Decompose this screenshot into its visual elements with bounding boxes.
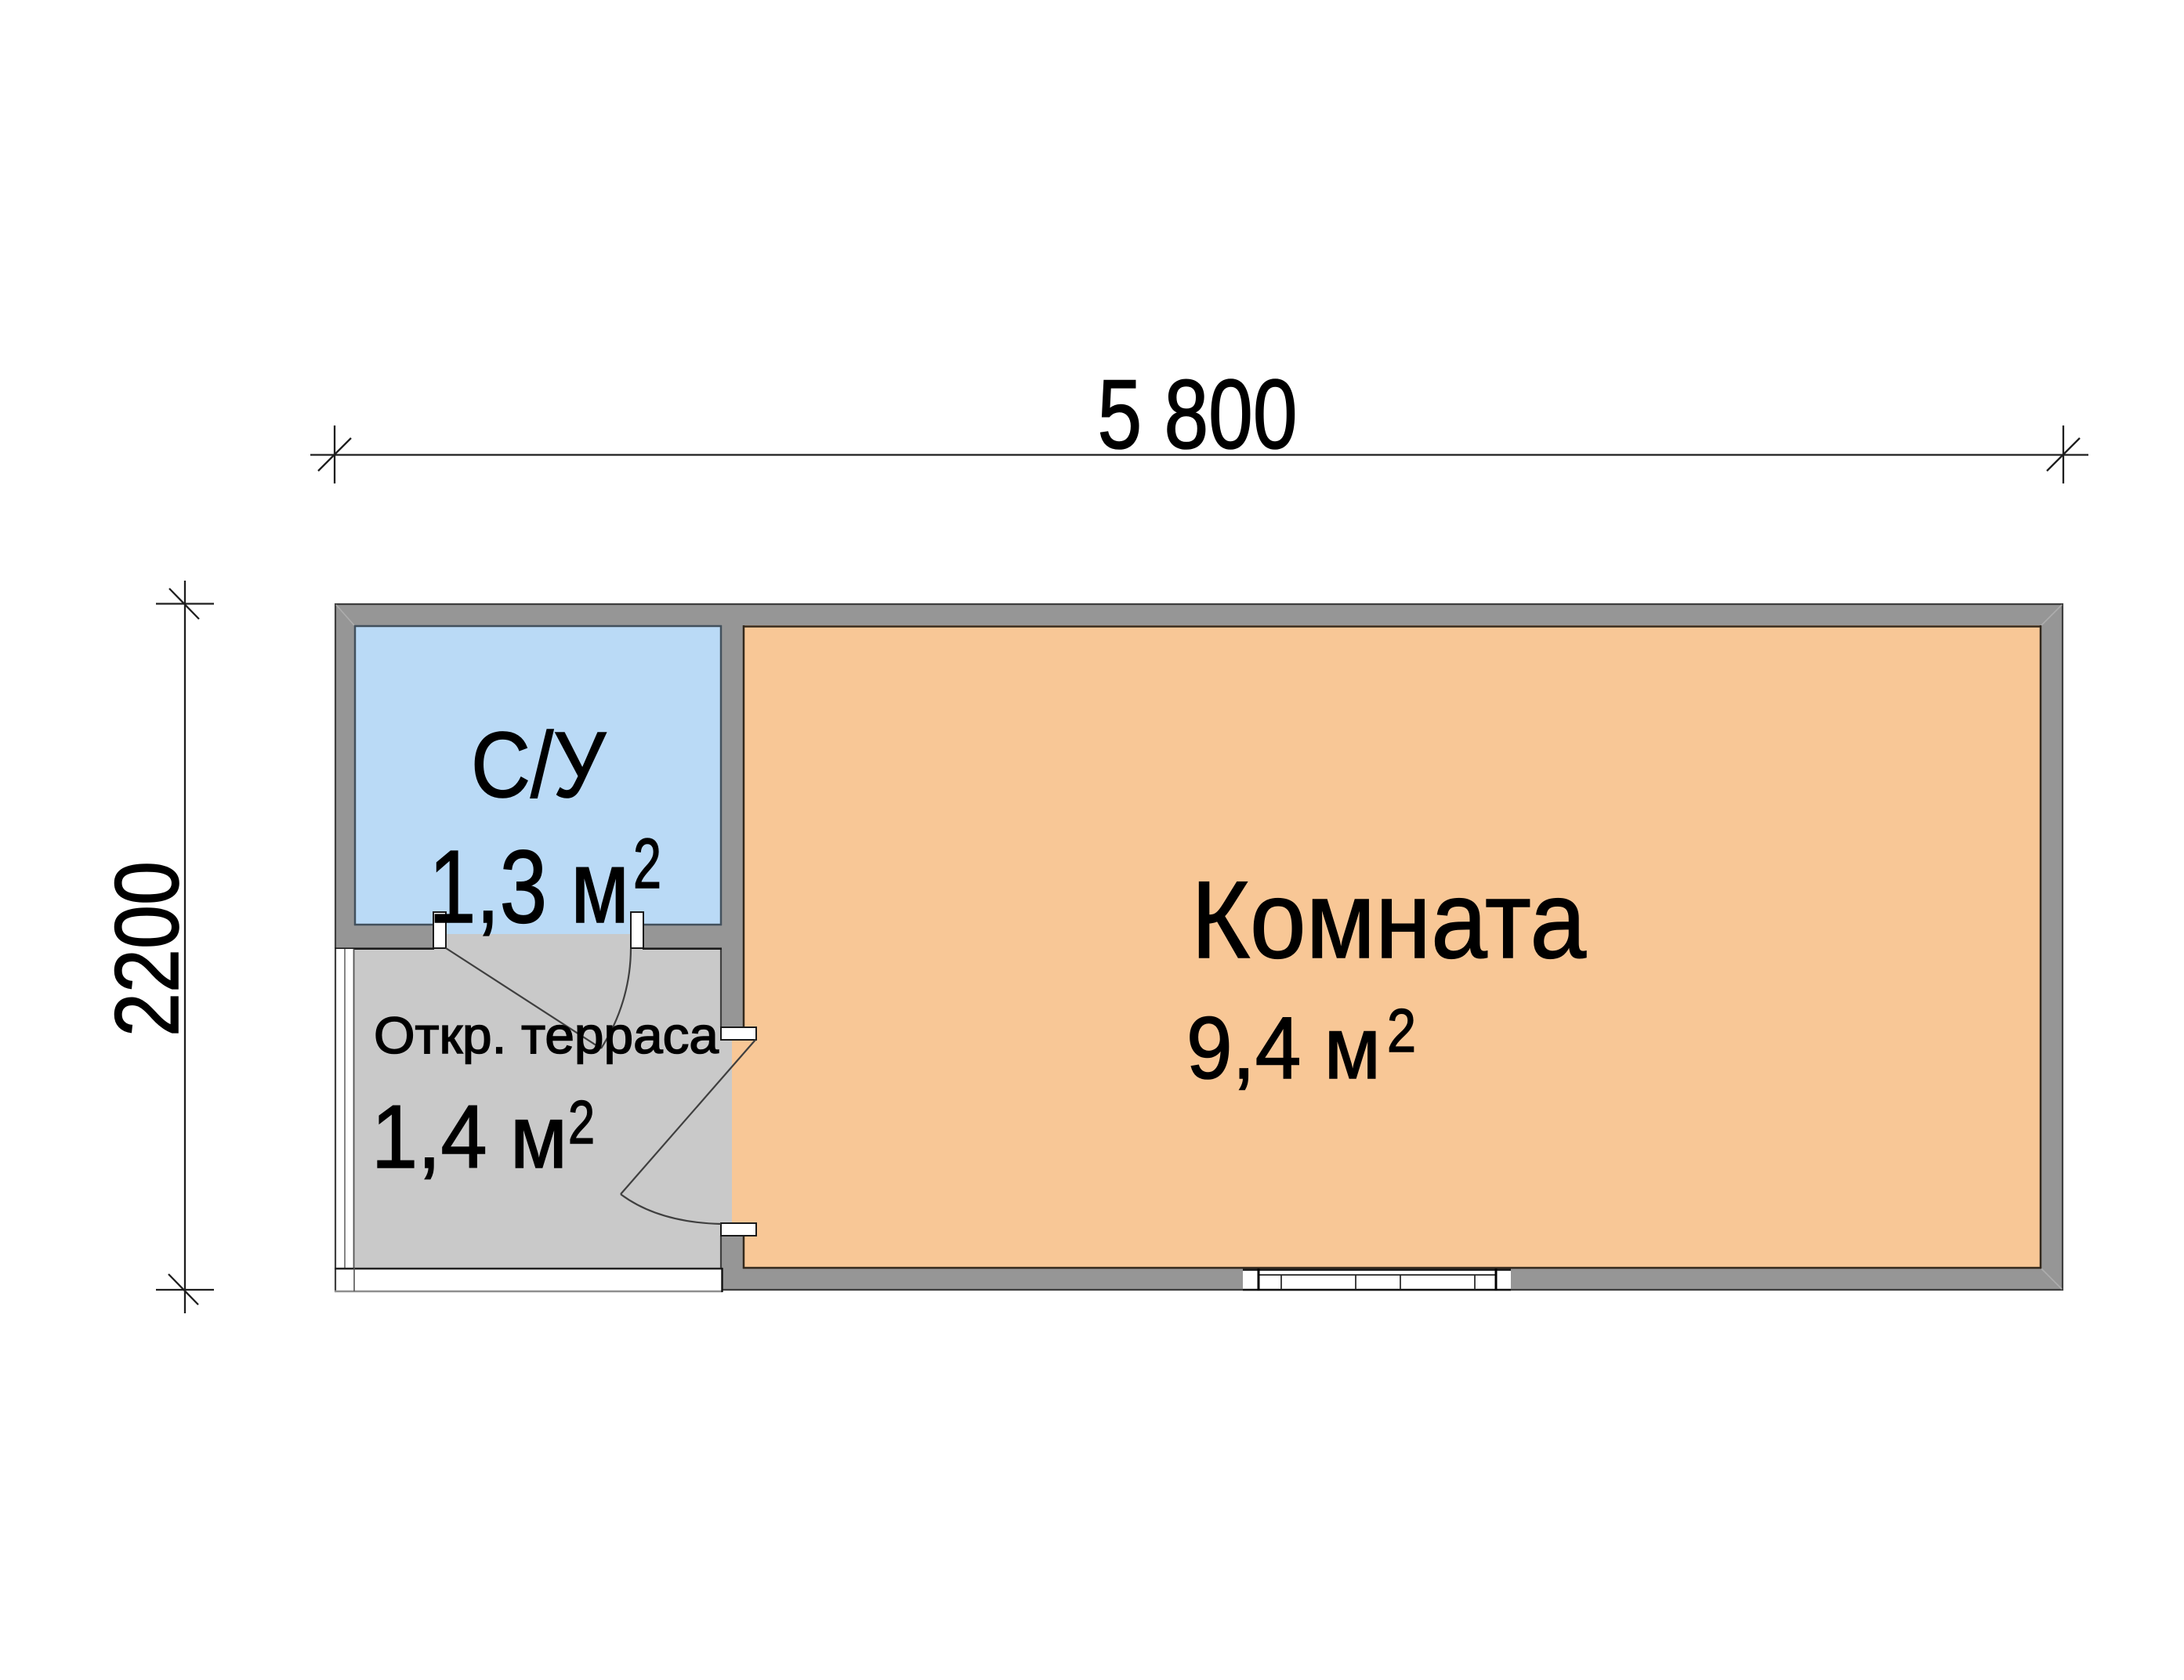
svg-text:1,3 м: 1,3 м: [429, 829, 629, 944]
svg-text:2: 2: [1387, 996, 1416, 1065]
svg-text:2: 2: [568, 1088, 595, 1157]
svg-text:1,4 м: 1,4 м: [371, 1088, 567, 1187]
svg-text:5 800: 5 800: [1098, 360, 1298, 469]
svg-text:С/У: С/У: [471, 713, 607, 817]
svg-text:9,4 м: 9,4 м: [1186, 999, 1381, 1097]
svg-text:Откр. терраса: Откр. терраса: [374, 1006, 719, 1064]
svg-text:Комната: Комната: [1191, 858, 1586, 981]
svg-text:2200: 2200: [97, 861, 197, 1037]
svg-text:2: 2: [633, 825, 661, 903]
